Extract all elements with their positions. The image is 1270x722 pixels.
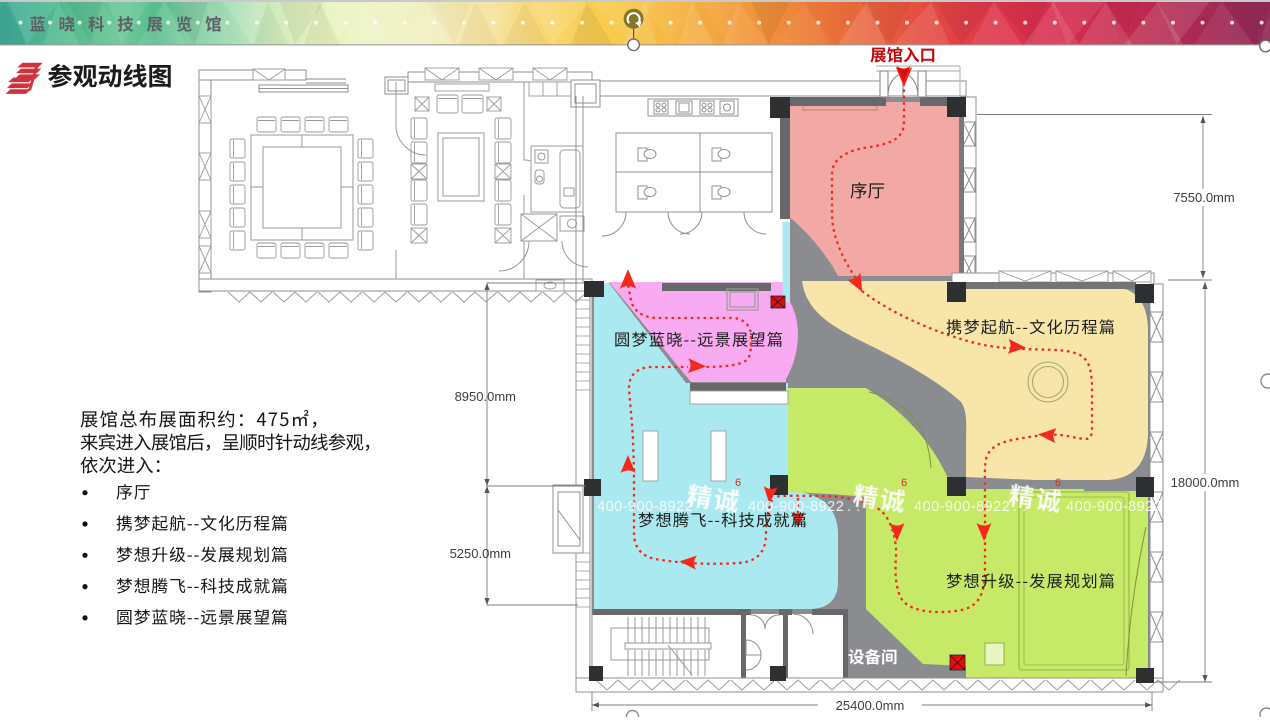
svg-text:400-900-8922: 400-900-8922 xyxy=(597,499,693,515)
svg-text:18000.0mm: 18000.0mm xyxy=(1171,475,1240,490)
svg-text:8950.0mm: 8950.0mm xyxy=(455,389,516,404)
svg-text:6: 6 xyxy=(1055,477,1061,489)
svg-text:400-900-8922: 400-900-8922 xyxy=(914,499,1010,515)
svg-text:7550.0mm: 7550.0mm xyxy=(1173,190,1234,205)
svg-text:400-900-8922: 400-900-8922 xyxy=(748,499,844,515)
svg-text:5250.0mm: 5250.0mm xyxy=(450,546,511,561)
svg-text:. . .: . . . xyxy=(1004,499,1027,515)
svg-text:6: 6 xyxy=(735,477,741,489)
svg-text:6: 6 xyxy=(901,477,907,489)
svg-text:400-900-8922: 400-900-8922 xyxy=(1066,499,1162,515)
svg-text:25400.0mm: 25400.0mm xyxy=(836,698,905,713)
